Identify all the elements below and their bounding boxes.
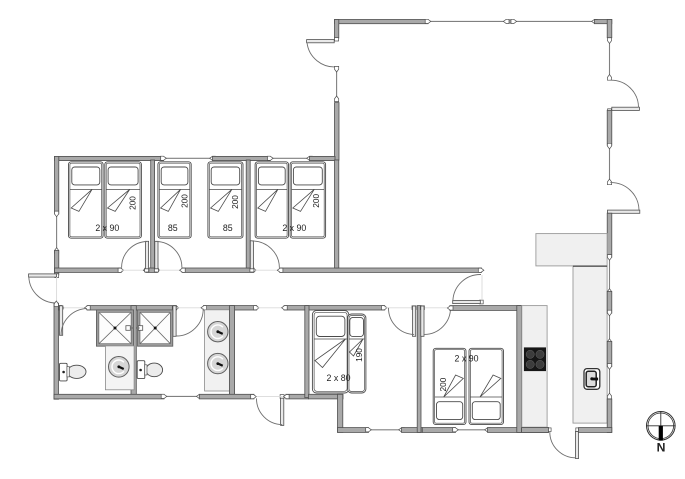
svg-text:2 x 90: 2 x 90 — [282, 223, 306, 233]
svg-text:85: 85 — [223, 223, 233, 233]
svg-text:200: 200 — [438, 377, 448, 391]
svg-text:200: 200 — [230, 195, 240, 209]
svg-text:190: 190 — [354, 348, 364, 362]
svg-text:200: 200 — [127, 196, 137, 210]
svg-text:2 x 90: 2 x 90 — [455, 354, 479, 364]
svg-text:200: 200 — [311, 193, 321, 207]
svg-text:2 x 80: 2 x 80 — [327, 373, 351, 383]
svg-text:85: 85 — [168, 223, 178, 233]
svg-text:2 x 90: 2 x 90 — [95, 223, 119, 233]
svg-text:N: N — [657, 440, 666, 454]
svg-text:200: 200 — [179, 194, 189, 208]
